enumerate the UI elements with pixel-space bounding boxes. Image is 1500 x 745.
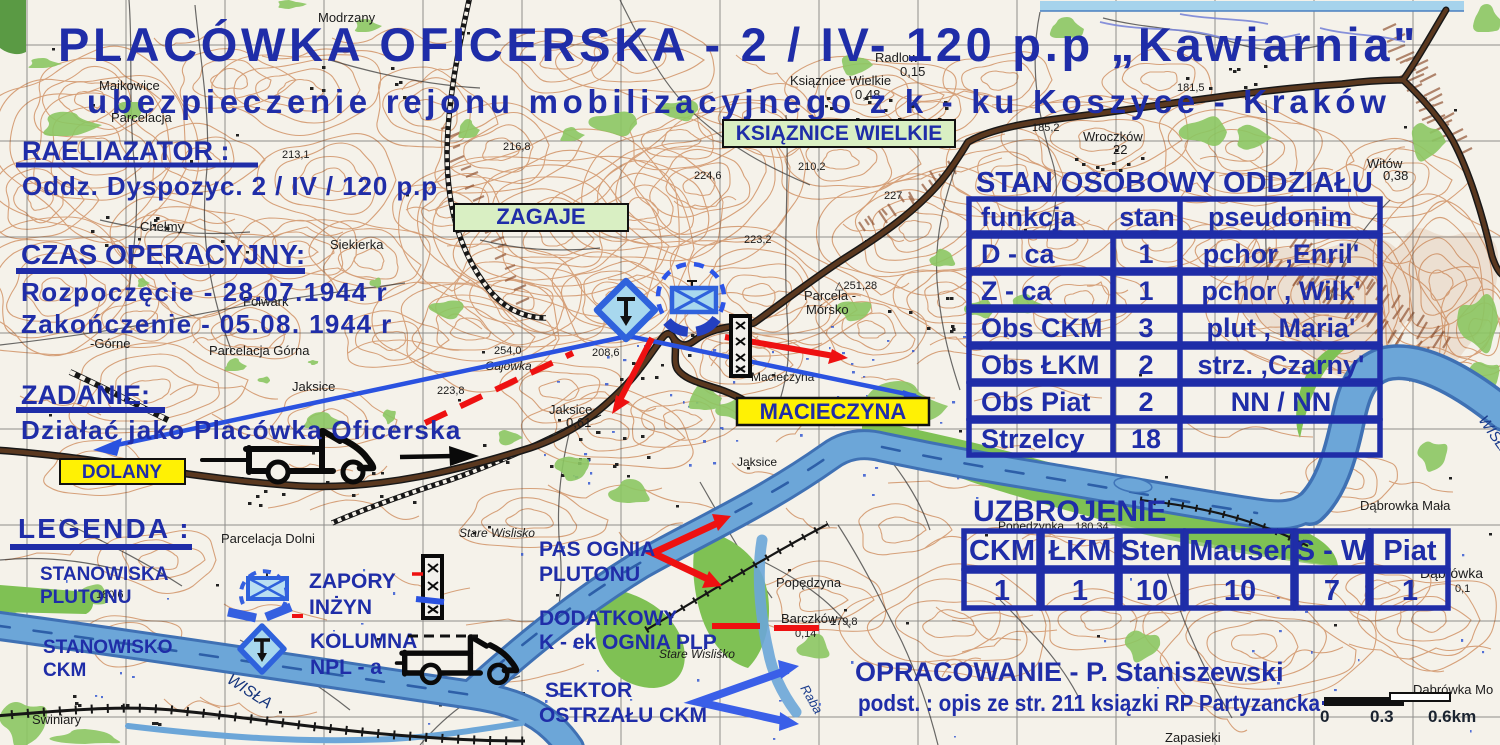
svg-text:1: 1 [1402, 575, 1418, 607]
svg-text:pseudonim: pseudonim [1208, 202, 1352, 232]
svg-text:funkcja: funkcja [981, 202, 1077, 232]
svg-text:1: 1 [994, 575, 1010, 607]
svg-text:1: 1 [1138, 276, 1153, 306]
svg-text:0,61: 0,61 [566, 415, 591, 430]
svg-text:Dąbrowka Mała: Dąbrowka Mała [1360, 498, 1451, 513]
svg-text:0: 0 [1320, 707, 1329, 726]
svg-text:PLUTONU: PLUTONU [539, 563, 640, 586]
svg-text:1: 1 [1072, 575, 1088, 607]
svg-text:7: 7 [1324, 575, 1340, 607]
svg-text:22: 22 [1113, 142, 1127, 157]
svg-text:S - W: S - W [1296, 535, 1369, 567]
svg-text:DODATKOWY: DODATKOWY [539, 607, 677, 630]
svg-text:pchor ‚Enril': pchor ‚Enril' [1203, 239, 1359, 269]
svg-text:Chełmy: Chełmy [140, 219, 185, 234]
svg-text:Stare Wislisko: Stare Wislisko [459, 526, 535, 540]
svg-text:NPL - a: NPL - a [310, 656, 382, 679]
svg-text:185,2: 185,2 [1032, 122, 1060, 134]
svg-text:Obs Piat: Obs Piat [981, 387, 1091, 417]
svg-text:Parcelacja Górna: Parcelacja Górna [209, 343, 310, 358]
svg-text:CKM: CKM [969, 535, 1035, 567]
svg-text:KSIĄZNICE WIELKIE: KSIĄZNICE WIELKIE [736, 122, 943, 145]
svg-text:Parcelacja Dolni: Parcelacja Dolni [221, 531, 315, 546]
svg-text:K - ek OGNIA PLP: K - ek OGNIA PLP [539, 631, 717, 654]
svg-text:plut , Maria': plut , Maria' [1207, 313, 1356, 343]
svg-text:179,8: 179,8 [830, 616, 858, 628]
svg-text:Jaksice: Jaksice [292, 379, 335, 394]
svg-text:Piat: Piat [1383, 535, 1437, 567]
svg-text:PLACÓWKA OFICERSKA - 2 / IV- 1: PLACÓWKA OFICERSKA - 2 / IV- 120 p.p „Ka… [58, 18, 1419, 71]
svg-text:LEGENDA :: LEGENDA : [18, 513, 191, 544]
svg-text:213,1: 213,1 [282, 149, 310, 161]
svg-text:10: 10 [1136, 575, 1168, 607]
svg-text:2: 2 [1138, 350, 1153, 380]
svg-text:RAELIAZATOR :: RAELIAZATOR : [22, 136, 229, 166]
svg-text:podst. : opis ze str. 211 ksią: podst. : opis ze str. 211 ksiązki RP Par… [858, 690, 1320, 716]
svg-text:Sten: Sten [1121, 535, 1184, 567]
svg-text:Z - ca: Z - ca [981, 276, 1053, 306]
svg-text:223,2: 223,2 [744, 234, 772, 246]
svg-text:223,8: 223,8 [437, 385, 465, 397]
svg-text:208,6: 208,6 [592, 347, 620, 359]
svg-text:3: 3 [1138, 313, 1153, 343]
svg-text:SEKTOR: SEKTOR [545, 679, 632, 702]
svg-text:KOLUMNA: KOLUMNA [310, 630, 417, 653]
svg-text:Popędzyna: Popędzyna [776, 575, 842, 590]
svg-text:Mórsko: Mórsko [806, 302, 849, 317]
svg-text:2: 2 [1138, 387, 1153, 417]
svg-text:ubezpieczenie rejonu mobilizac: ubezpieczenie rejonu mobilizacyjnego z k… [87, 83, 1391, 120]
svg-text:18: 18 [1131, 424, 1161, 454]
svg-text:Działać jako Placówka Oficersk: Działać jako Placówka Oficerska [21, 415, 462, 445]
svg-text:CZAS OPERACYJNY:: CZAS OPERACYJNY: [21, 239, 305, 270]
svg-text:Świniary: Świniary [32, 712, 82, 727]
svg-text:210,2: 210,2 [798, 161, 826, 173]
svg-text:1: 1 [1138, 239, 1153, 269]
svg-text:NN / NN: NN / NN [1231, 387, 1332, 417]
svg-text:0,38: 0,38 [1383, 168, 1408, 183]
svg-text:Oddz. Dyspozyc. 2 / IV / 120 p: Oddz. Dyspozyc. 2 / IV / 120 p.p [22, 171, 438, 201]
svg-text:Mauser: Mauser [1189, 535, 1291, 567]
svg-text:STAN OSOBOWY ODDZIAŁU: STAN OSOBOWY ODDZIAŁU [976, 167, 1373, 199]
svg-text:ZAGAJE: ZAGAJE [496, 204, 585, 229]
svg-text:STANOWISKA: STANOWISKA [40, 564, 169, 585]
svg-text:Obs ŁKM: Obs ŁKM [981, 350, 1100, 380]
svg-text:pchor , Wilk': pchor , Wilk' [1201, 276, 1360, 306]
svg-text:strz. ‚Czarny': strz. ‚Czarny' [1198, 350, 1365, 380]
svg-text:DOLANY: DOLANY [82, 462, 163, 483]
svg-text:0,1: 0,1 [1455, 583, 1470, 595]
svg-text:216,8: 216,8 [503, 141, 531, 153]
svg-text:Zapasieki: Zapasieki [1165, 730, 1221, 745]
svg-text:10: 10 [1224, 575, 1256, 607]
svg-text:Rozpoczęcie - 28.07.1944 r: Rozpoczęcie - 28.07.1944 r [21, 277, 388, 307]
svg-text:CKM: CKM [43, 660, 86, 681]
svg-text:227: 227 [884, 190, 902, 202]
svg-text:Zakończenie - 05.08. 1944 r: Zakończenie - 05.08. 1944 r [21, 309, 393, 339]
svg-text:ŁKM: ŁKM [1049, 535, 1112, 567]
svg-text:D - ca: D - ca [981, 239, 1056, 269]
svg-text:Jaksice: Jaksice [737, 455, 777, 469]
svg-text:ZADANIE:: ZADANIE: [21, 380, 150, 410]
svg-text:OSTRZAŁU CKM: OSTRZAŁU CKM [539, 704, 707, 727]
svg-text:Obs CKM: Obs CKM [981, 313, 1103, 343]
svg-text:Strzelcy: Strzelcy [981, 424, 1085, 454]
svg-text:PAS OGNIA: PAS OGNIA [539, 538, 655, 561]
svg-text:△251,28: △251,28 [835, 280, 877, 292]
svg-text:STANOWISKO: STANOWISKO [43, 637, 172, 658]
svg-text:OPRACOWANIE - P. Staniszewski: OPRACOWANIE - P. Staniszewski [855, 657, 1284, 687]
svg-text:stan: stan [1119, 202, 1175, 232]
svg-text:ZAPORY: ZAPORY [309, 570, 396, 593]
svg-text:0.6km: 0.6km [1428, 707, 1476, 726]
svg-text:0.3: 0.3 [1370, 707, 1394, 726]
svg-text:254,0: 254,0 [494, 345, 522, 357]
svg-text:UZBROJENIE: UZBROJENIE [973, 495, 1166, 528]
svg-text:224,6: 224,6 [694, 170, 722, 182]
svg-text:Siekierka: Siekierka [330, 237, 384, 252]
svg-text:INŻYN: INŻYN [309, 596, 372, 619]
svg-text:MACIECZYNA: MACIECZYNA [760, 399, 907, 424]
svg-text:PLUTONU: PLUTONU [40, 587, 131, 608]
